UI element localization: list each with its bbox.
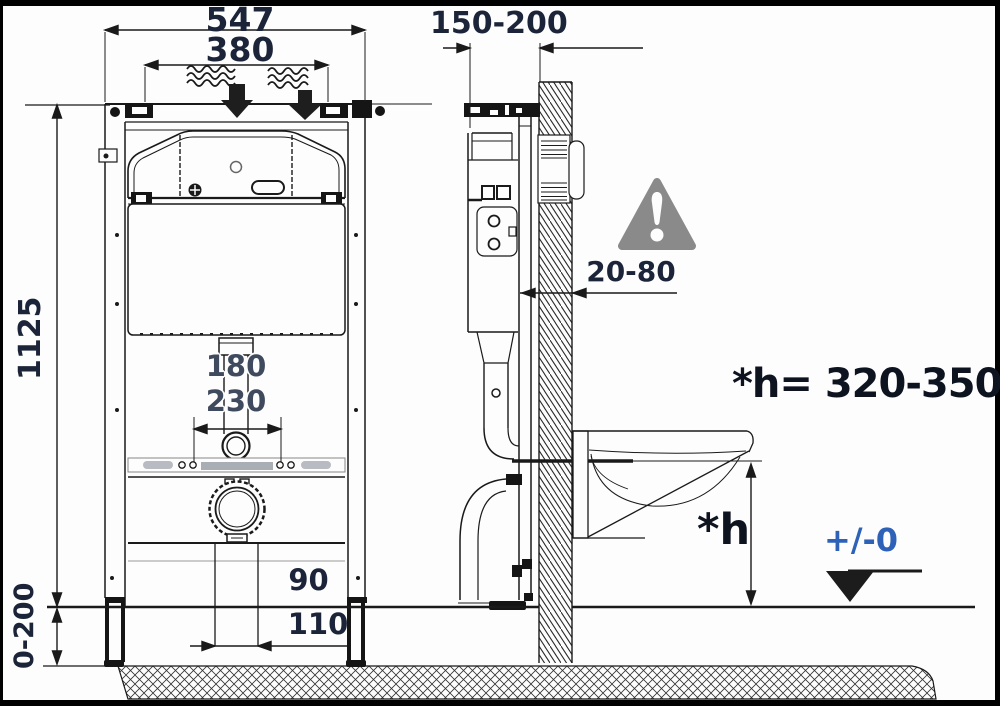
installation-diagram: 547 380 1125 180 230 90 110 0-200 150-20… <box>0 0 1000 706</box>
side-flush-pipe <box>484 363 762 461</box>
side-cistern <box>468 133 518 363</box>
down-arrow-icon <box>288 90 322 120</box>
water-symbol <box>187 66 308 88</box>
cistern-front <box>128 131 345 335</box>
dim-label-seat-height-range: *h= 320-350 <box>732 364 1000 404</box>
side-drain-pipe <box>458 474 533 610</box>
drawing-canvas <box>0 0 1000 706</box>
dim-label-seat-height-symbol: *h <box>697 509 750 552</box>
dim-label-inner-width: 380 <box>195 33 285 66</box>
floor-hatch <box>118 666 936 699</box>
dim-label-wall-gap: 20-80 <box>576 258 686 286</box>
floor-level-marker-icon <box>826 571 922 602</box>
dim-label-drop-180: 180 <box>205 352 267 381</box>
dimension-lines <box>25 26 756 665</box>
dim-label-drop-230: 230 <box>203 387 269 416</box>
dim-label-foot-range: 0-200 <box>11 583 38 669</box>
dim-label-frame-height: 1125 <box>16 297 46 381</box>
dim-label-outlet-90: 90 <box>281 566 336 595</box>
dim-label-floor-reference: +/-0 <box>824 524 898 556</box>
warning-triangle-icon <box>622 182 692 246</box>
dim-label-depth-range: 150-200 <box>430 9 560 39</box>
floor-section <box>43 666 936 699</box>
wall-anchor <box>538 135 584 203</box>
support-bar <box>128 458 345 477</box>
dim-label-outlet-110: 110 <box>284 610 352 639</box>
down-arrow-icon <box>221 84 253 118</box>
